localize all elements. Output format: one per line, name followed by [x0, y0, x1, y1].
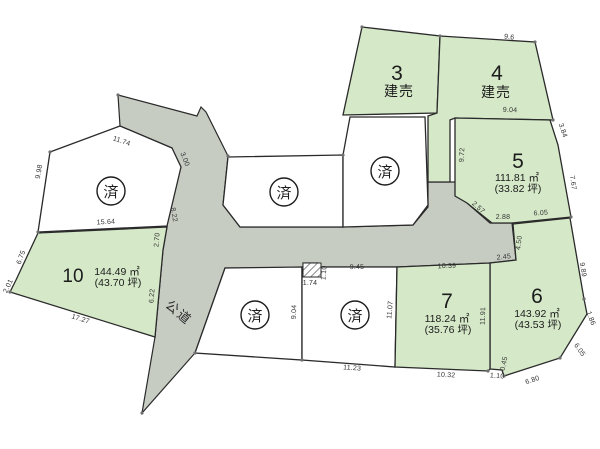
- lot-4-status: 建売: [481, 84, 511, 100]
- lot-6-tsubo: (43.53 坪): [515, 318, 562, 331]
- dimension-label: 2.88: [496, 214, 510, 221]
- sold-stamp: 済: [241, 301, 269, 329]
- dimension-label: 3.84: [557, 123, 568, 139]
- dimension-label: 2.70: [153, 232, 161, 247]
- dimension-label: 1.86: [585, 311, 597, 327]
- dimension-label: 1.74: [303, 280, 317, 287]
- lot-5-number: 5: [512, 150, 524, 173]
- sold-stamp: 済: [270, 178, 298, 206]
- sold-stamp: 済: [341, 301, 369, 329]
- sold-stamp-text: 済: [347, 308, 362, 325]
- lot-5-tsubo: (33.82 坪): [495, 182, 542, 195]
- sold-stamp-text: 済: [247, 308, 262, 325]
- sold-stamp-text: 済: [377, 164, 392, 181]
- lot-3-status: 建売: [384, 83, 414, 99]
- dimension-label: 10.32: [437, 372, 456, 380]
- dimension-label: 9.98: [35, 164, 44, 179]
- dimension-label: 1.10: [490, 372, 505, 380]
- lot-10-number: 10: [62, 266, 83, 287]
- dimension-label: 15.64: [96, 219, 115, 227]
- dimension-label: 7.67: [568, 175, 577, 190]
- lot-10-tsubo: (43.70 坪): [95, 276, 142, 289]
- dimension-label: 11.23: [343, 364, 361, 372]
- lot-7-tsubo: (35.76 坪): [425, 323, 472, 336]
- dimension-label: 10.39: [438, 263, 457, 271]
- dimension-label: 6.05: [572, 342, 586, 358]
- dimension-label: 9.04: [503, 107, 518, 114]
- hatched-strip: [303, 263, 321, 277]
- plot-map-canvas: 3 建売 4 建売 5 111.81 ㎡ (33.82 坪) 6 143.92 …: [0, 0, 600, 449]
- dimension-label: 6.22: [149, 288, 157, 303]
- dimension-label: 6.80: [525, 375, 541, 386]
- dimension-label: 11.91: [480, 307, 488, 325]
- sold-stamp: 済: [97, 177, 125, 205]
- sold-stamp-text: 済: [276, 185, 291, 202]
- lot-4-number: 4: [491, 62, 503, 85]
- sold-stamp: 済: [371, 157, 399, 185]
- lot-subdivision-map: 3 建売 4 建売 5 111.81 ㎡ (33.82 坪) 6 143.92 …: [0, 0, 600, 449]
- sold-stamp-text: 済: [103, 184, 118, 201]
- dimension-label: 9.72: [459, 148, 467, 163]
- dimension-label: 9.04: [291, 305, 298, 320]
- lot-3-number: 3: [391, 62, 403, 85]
- dimension-label: 6.05: [533, 210, 548, 218]
- dimension-label: 1.10: [320, 265, 328, 280]
- lot-6-number: 6: [531, 285, 543, 308]
- dimension-label: 9.45: [350, 264, 365, 271]
- dimension-label: 9.6: [504, 33, 515, 41]
- lot-7-number: 7: [441, 290, 453, 313]
- lot-10-label: 10 144.49 ㎡ (43.70 坪): [62, 266, 141, 289]
